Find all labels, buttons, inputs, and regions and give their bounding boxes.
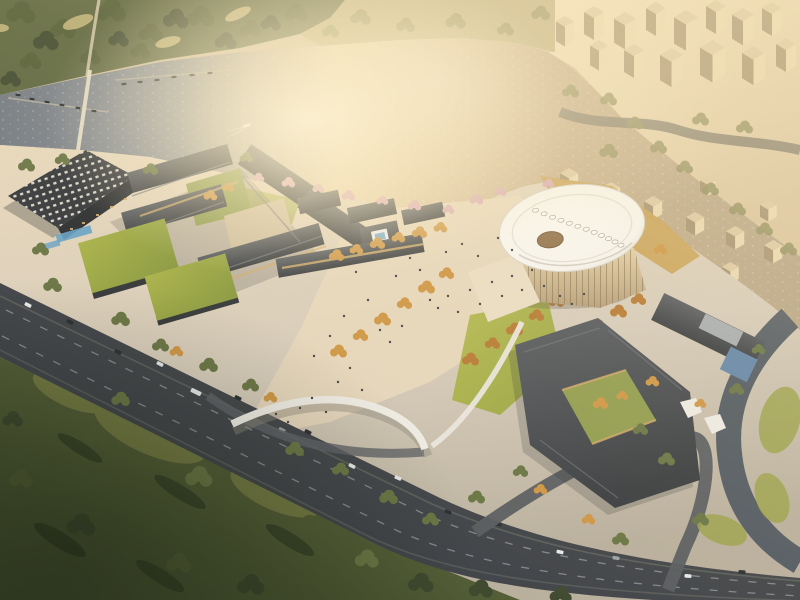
atmosphere	[0, 0, 800, 600]
aerial-rendering-canvas	[0, 0, 800, 600]
scene-svg	[0, 0, 800, 600]
